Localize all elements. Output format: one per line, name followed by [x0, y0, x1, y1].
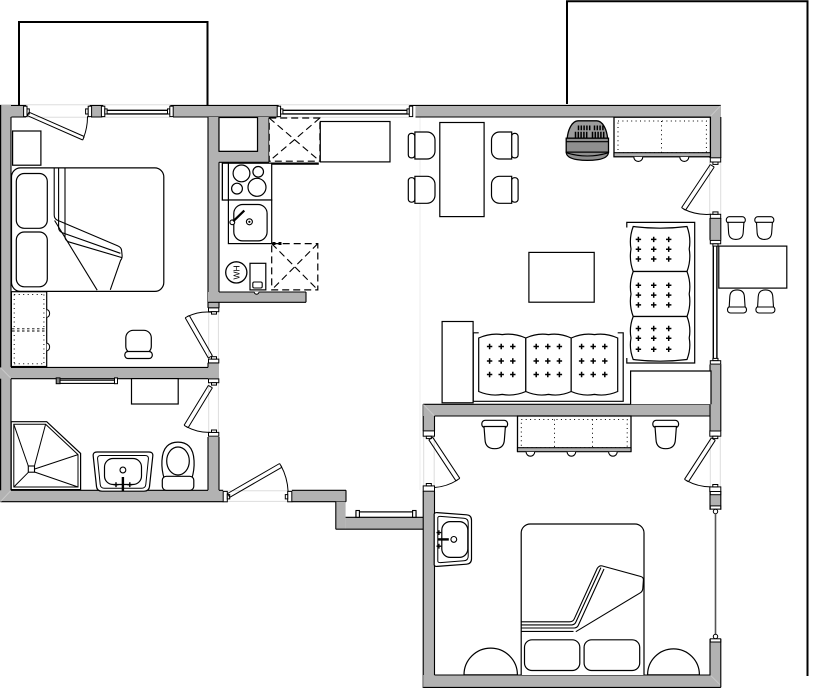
svg-text:WH: WH	[231, 265, 241, 279]
